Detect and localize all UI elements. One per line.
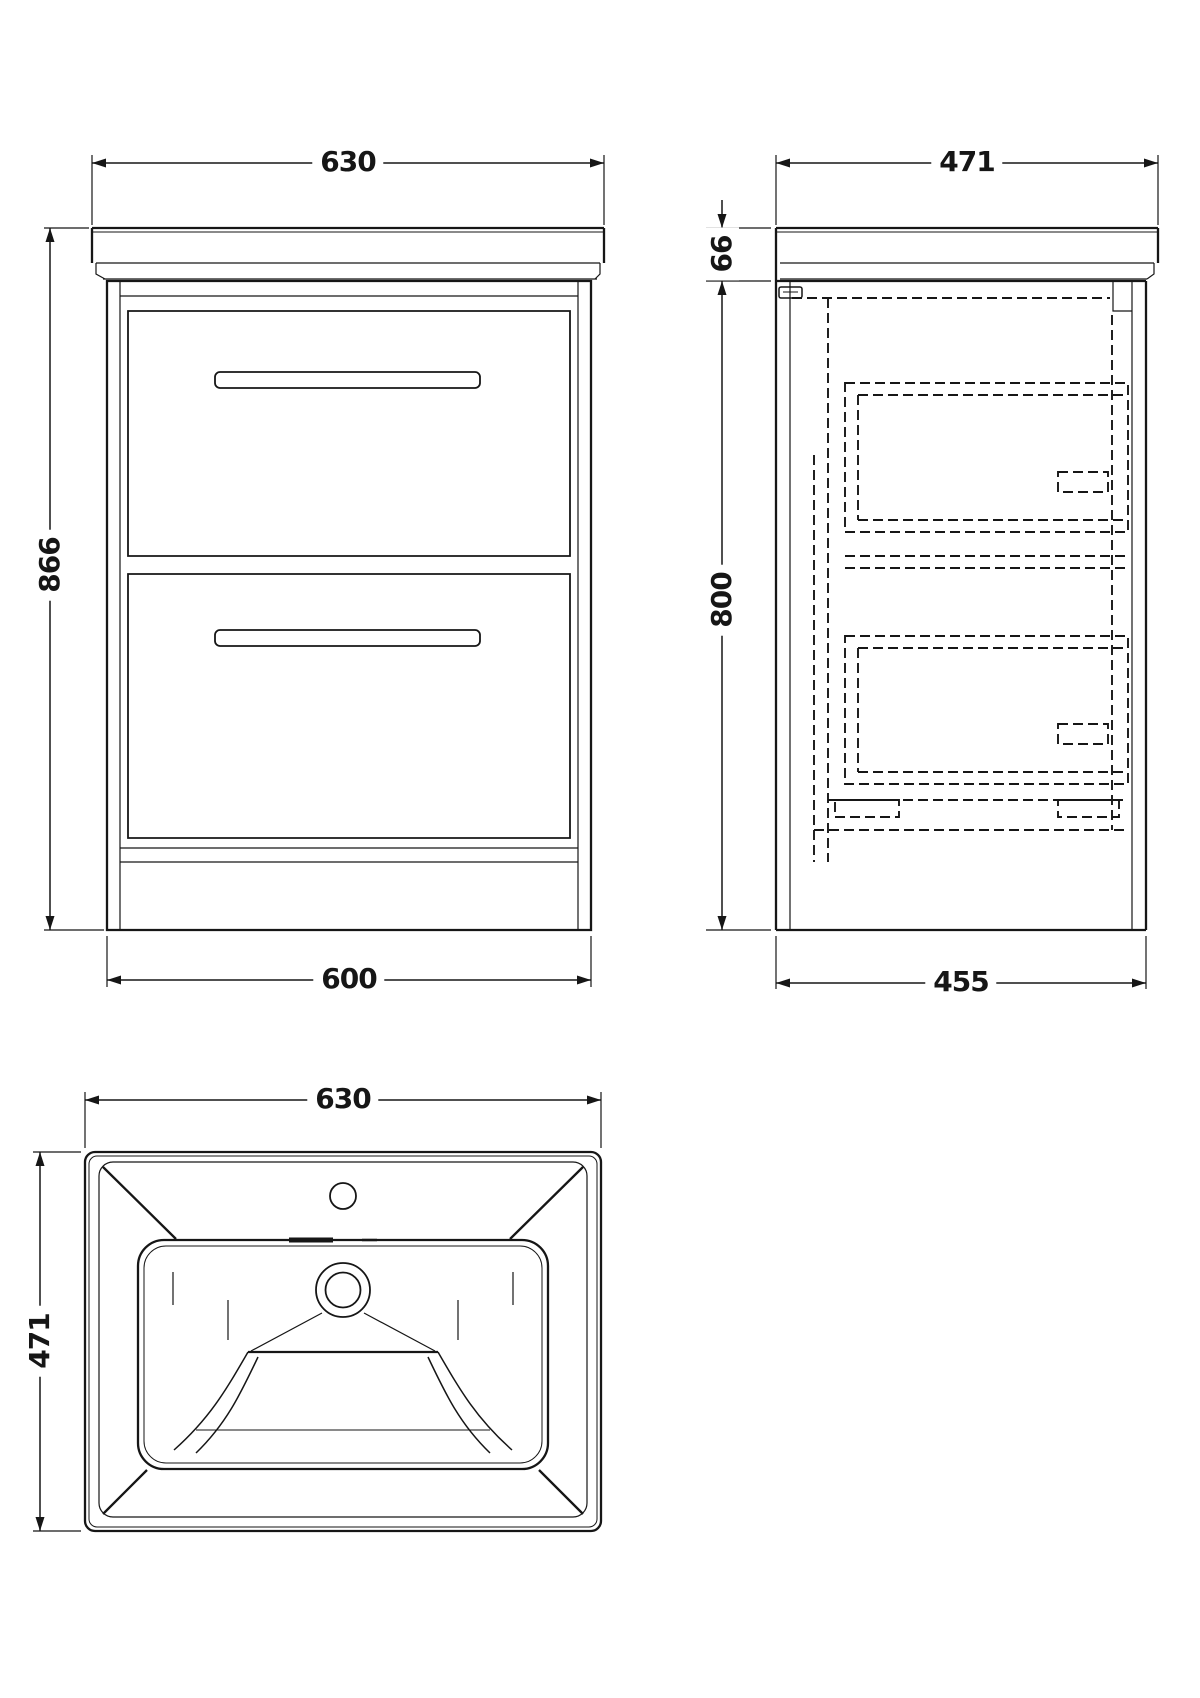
side-worktop bbox=[776, 228, 1158, 281]
dim-side-cabinet-height-label: 800 bbox=[705, 564, 739, 635]
plan-basin-deck bbox=[85, 1152, 601, 1531]
plan-corner-chamfers bbox=[103, 1167, 583, 1514]
tap-hole bbox=[330, 1183, 356, 1209]
side-cabinet bbox=[776, 281, 1146, 930]
technical-drawing-page: 630 866 600 471 66 800 455 630 471 bbox=[0, 0, 1200, 1698]
front-drawer-bottom-handle bbox=[215, 630, 480, 646]
side-elevation-drawing bbox=[660, 0, 1200, 1010]
front-drawer-bottom bbox=[128, 574, 570, 838]
waste-hole-outer bbox=[316, 1263, 370, 1317]
dim-plan-width-label: 630 bbox=[307, 1082, 378, 1116]
dim-side-depth-bottom-label: 455 bbox=[925, 965, 996, 999]
side-hidden-detail bbox=[792, 298, 1128, 862]
dim-front-height-label: 866 bbox=[33, 529, 67, 600]
plan-basin-bowl bbox=[138, 1240, 548, 1469]
waste-hole-inner bbox=[326, 1273, 361, 1308]
dim-side-depth-top-label: 471 bbox=[931, 145, 1002, 179]
side-upper-runner bbox=[1058, 472, 1108, 492]
front-worktop bbox=[92, 228, 604, 279]
dim-plan-depth-label: 471 bbox=[23, 1305, 57, 1376]
dim-front-width-top-label: 630 bbox=[312, 145, 383, 179]
side-lower-runner bbox=[1058, 724, 1108, 744]
dim-front-width-bottom-label: 600 bbox=[313, 962, 384, 996]
front-drawer-top-handle bbox=[215, 372, 480, 388]
side-elevation-view bbox=[660, 0, 1200, 1010]
front-drawer-top bbox=[128, 311, 570, 556]
front-cabinet bbox=[107, 281, 591, 930]
dim-side-worktop-height-label: 66 bbox=[705, 228, 739, 281]
